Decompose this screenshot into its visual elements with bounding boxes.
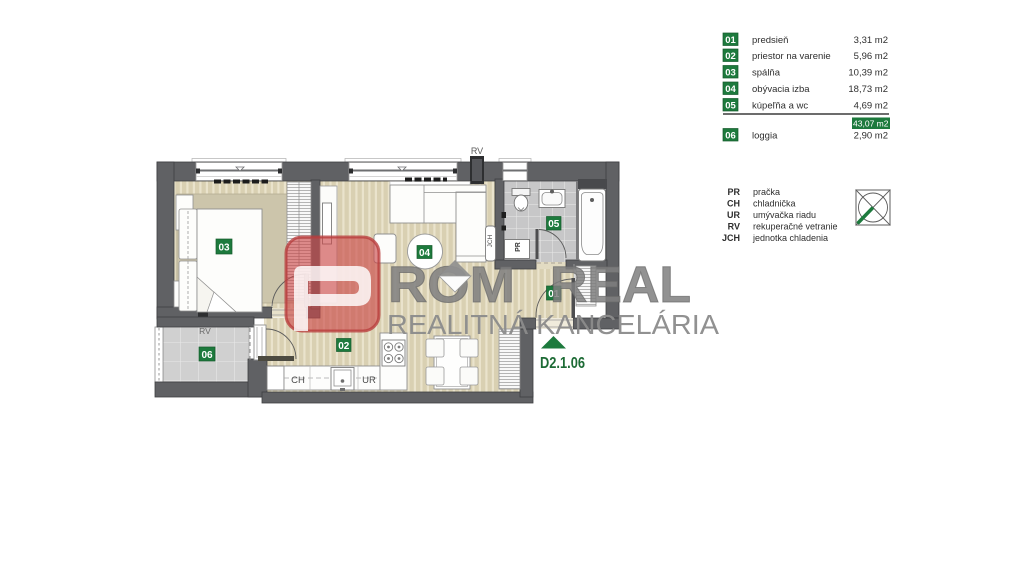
svg-text:chladnička: chladnička xyxy=(753,199,796,209)
svg-text:REALITNÁ KANCELÁRIA: REALITNÁ KANCELÁRIA xyxy=(387,309,719,340)
svg-text:02: 02 xyxy=(725,51,736,62)
svg-text:RV: RV xyxy=(471,146,483,156)
svg-text:04: 04 xyxy=(725,84,736,95)
svg-text:JCH: JCH xyxy=(487,234,494,247)
svg-text:43,07 m2: 43,07 m2 xyxy=(853,118,889,128)
svg-text:5,96 m2: 5,96 m2 xyxy=(854,51,888,62)
svg-text:03: 03 xyxy=(218,243,230,254)
svg-text:umývačka riadu: umývačka riadu xyxy=(753,210,816,220)
svg-text:spálňa: spálňa xyxy=(752,68,781,79)
svg-text:predsieň: predsieň xyxy=(752,35,788,46)
svg-text:obývacia izba: obývacia izba xyxy=(752,84,810,95)
svg-text:REAL: REAL xyxy=(550,256,691,313)
svg-text:18,73 m2: 18,73 m2 xyxy=(848,84,888,95)
svg-text:CH: CH xyxy=(727,199,740,209)
svg-text:loggia: loggia xyxy=(752,131,778,142)
svg-text:kúpeľňa a wc: kúpeľňa a wc xyxy=(752,101,808,112)
svg-text:UR: UR xyxy=(727,210,740,220)
svg-text:UR: UR xyxy=(362,375,376,386)
svg-text:05: 05 xyxy=(548,219,560,230)
svg-text:PR: PR xyxy=(515,242,522,252)
svg-text:05: 05 xyxy=(725,100,736,111)
svg-text:3,31 m2: 3,31 m2 xyxy=(854,35,888,46)
svg-text:D2.1.06: D2.1.06 xyxy=(540,355,585,372)
svg-text:RV: RV xyxy=(199,326,211,336)
svg-text:PR: PR xyxy=(727,187,740,197)
svg-text:02: 02 xyxy=(338,341,350,352)
svg-text:JCH: JCH xyxy=(722,233,740,243)
svg-text:jednotka chladenia: jednotka chladenia xyxy=(752,233,828,243)
svg-text:2,90 m2: 2,90 m2 xyxy=(854,131,888,142)
svg-text:10,39 m2: 10,39 m2 xyxy=(848,68,888,79)
svg-text:rekuperačné vetranie: rekuperačné vetranie xyxy=(753,222,838,232)
svg-text:RV: RV xyxy=(728,222,740,232)
svg-text:4,69 m2: 4,69 m2 xyxy=(854,101,888,112)
svg-text:CH: CH xyxy=(291,375,305,386)
svg-text:06: 06 xyxy=(201,350,213,361)
svg-text:06: 06 xyxy=(725,130,736,141)
svg-text:pračka: pračka xyxy=(753,187,780,197)
svg-text:priestor na varenie: priestor na varenie xyxy=(752,51,831,62)
svg-text:01: 01 xyxy=(725,35,736,46)
svg-text:03: 03 xyxy=(725,67,736,78)
